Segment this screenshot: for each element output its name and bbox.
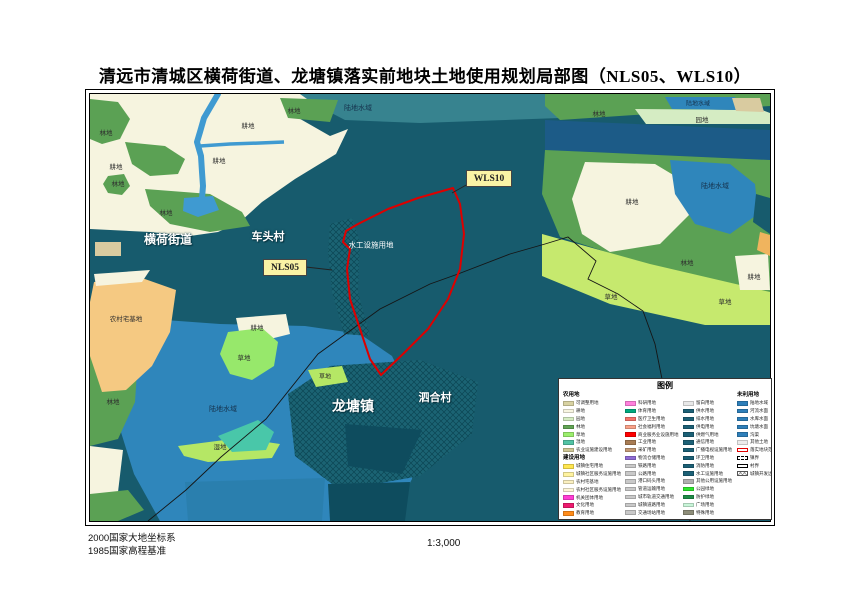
legend-swatch	[563, 495, 574, 500]
legend-item-label: 湿地	[576, 439, 585, 445]
legend-swatch	[683, 487, 694, 492]
legend-item-label: 村界	[750, 463, 759, 469]
legend-item-label: 园地	[576, 416, 585, 422]
legend-swatch	[563, 480, 574, 485]
legend-item-label: 落实地块范围	[750, 447, 772, 453]
legend-swatch	[563, 401, 574, 406]
region-top-water-band	[280, 94, 560, 123]
legend-item-label: 其他公用设施用地	[696, 478, 732, 484]
legend-swatch	[625, 510, 636, 515]
legend-swatch	[563, 432, 574, 437]
legend-swatch	[625, 471, 636, 476]
legend-item: 城市轨道交通用地	[625, 493, 683, 501]
legend-item-label: 公园绿地	[696, 486, 714, 492]
legend-item: 供水用地	[683, 407, 737, 415]
legend-swatch	[563, 425, 574, 430]
legend-item-label: 留白用地	[696, 400, 714, 406]
legend-item: 农村宅基地	[563, 478, 625, 486]
legend-item-label: 物流仓储用地	[638, 455, 665, 461]
legend-item: 广播电视设施用地	[683, 446, 737, 454]
legend-item: 消防用地	[683, 462, 737, 470]
legend-swatch	[683, 425, 694, 430]
legend-swatch	[625, 495, 636, 500]
legend-swatch	[625, 417, 636, 422]
legend-swatch	[683, 409, 694, 414]
legend-item: 铁路用地	[625, 462, 683, 470]
legend-swatch	[625, 432, 636, 437]
legend-item-label: 城镇道路用地	[638, 502, 665, 508]
legend-item: 工业用地	[625, 438, 683, 446]
legend-swatch	[737, 425, 748, 430]
legend-item: 特殊用地	[683, 509, 737, 517]
legend-item-label: 科研用地	[638, 400, 656, 406]
legend-swatch	[683, 510, 694, 515]
legend-item-label: 河流水面	[750, 408, 768, 414]
legend-item: 村界	[737, 462, 769, 470]
legend-item-label: 水工设施用地	[696, 471, 723, 477]
legend-swatch	[683, 464, 694, 469]
legend-swatch	[563, 448, 574, 453]
legend-item: 供燃气用地	[683, 431, 737, 439]
legend-item: 落实地块范围	[737, 446, 769, 454]
legend-swatch	[625, 479, 636, 484]
legend-item: 教育用地	[563, 509, 625, 517]
legend-item: 港口码头用地	[625, 477, 683, 485]
legend-item: 水库水面	[737, 415, 769, 423]
legend-item-label: 排水用地	[696, 416, 714, 422]
legend-item-label: 陆地水域	[750, 400, 768, 406]
legend-column: 未利用地陆地水域河流水面水库水面坑塘水面沟渠其他土地落实地块范围镇界村界城镇开发…	[737, 391, 769, 517]
legend-item-label: 农业设施建设用地	[576, 447, 612, 453]
legend-item: 城镇社区服务设施用地	[563, 470, 625, 478]
legend-item: 农村社区服务设施用地	[563, 486, 625, 494]
legend-swatch	[563, 417, 574, 422]
legend-item-label: 体育用地	[638, 408, 656, 414]
legend-item-label: 消防用地	[696, 463, 714, 469]
legend-item: 交通场站用地	[625, 509, 683, 517]
legend-item-label: 供燃气用地	[696, 432, 719, 438]
legend-item: 采矿用地	[625, 446, 683, 454]
legend-item-label: 特殊用地	[696, 510, 714, 516]
legend-swatch	[625, 464, 636, 469]
legend-item-label: 教育用地	[576, 510, 594, 516]
legend-item: 沟渠	[737, 431, 769, 439]
legend-item-label: 水库水面	[750, 416, 768, 422]
legend-item-label: 广场用地	[696, 502, 714, 508]
legend-title: 图例	[563, 381, 767, 391]
legend-swatch	[563, 464, 574, 469]
legend-item-label: 可调整用地	[576, 400, 599, 406]
legend-item-label: 交通场站用地	[638, 510, 665, 516]
legend-item-label: 供水用地	[696, 408, 714, 414]
legend-item: 广场用地	[683, 501, 737, 509]
legend-item-label: 草地	[576, 432, 585, 438]
legend-section-header: 未利用地	[737, 391, 769, 400]
legend-column: 农用地可调整用地耕地园地林地草地湿地农业设施建设用地建设用地城镇住宅用地城镇社区…	[563, 391, 625, 517]
legend-item: 管道运输用地	[625, 485, 683, 493]
page-title: 清远市清城区横荷街道、龙塘镇落实前地块土地使用规划局部图（NLS05、WLS10…	[0, 62, 850, 87]
legend-swatch	[683, 479, 694, 484]
legend-item-label: 供电用地	[696, 424, 714, 430]
legend-item-label: 城镇社区服务设施用地	[576, 471, 621, 477]
legend-item-label: 港口码头用地	[638, 478, 665, 484]
legend-item-label: 通信用地	[696, 439, 714, 445]
legend-section-header: 农用地	[563, 391, 625, 400]
legend-item: 商业服务业设施用地	[625, 431, 683, 439]
legend-item: 科研用地	[625, 400, 683, 408]
datum-line-2: 1985国家高程基准	[88, 543, 166, 557]
legend-swatch	[737, 432, 748, 437]
legend-swatch	[563, 488, 574, 493]
legend-item-label: 城镇开发边界	[750, 471, 772, 477]
legend-swatch	[683, 432, 694, 437]
legend-columns: 农用地可调整用地耕地园地林地草地湿地农业设施建设用地建设用地城镇住宅用地城镇社区…	[563, 391, 767, 517]
legend-item: 排水用地	[683, 415, 737, 423]
legend-item: 通信用地	[683, 438, 737, 446]
legend-item: 农业设施建设用地	[563, 446, 625, 454]
legend-item: 城镇开发边界	[737, 470, 769, 478]
legend-item: 园地	[563, 415, 625, 423]
legend-swatch	[683, 448, 694, 453]
legend-item: 机关团体用地	[563, 494, 625, 502]
legend-item-label: 城镇住宅用地	[576, 463, 603, 469]
legend-item-label: 沟渠	[750, 432, 759, 438]
legend-item: 防护绿地	[683, 493, 737, 501]
legend-swatch	[625, 456, 636, 461]
legend-item-label: 林地	[576, 424, 585, 430]
legend-item: 供电用地	[683, 423, 737, 431]
legend-swatch	[563, 409, 574, 414]
legend-item-label: 广播电视设施用地	[696, 447, 732, 453]
legend-item: 其他土地	[737, 438, 769, 446]
legend-swatch	[683, 456, 694, 461]
legend-swatch	[625, 487, 636, 492]
legend-item: 体育用地	[625, 407, 683, 415]
legend-item: 文化用地	[563, 502, 625, 510]
legend-swatch	[625, 425, 636, 430]
legend-item-label: 其他土地	[750, 439, 768, 445]
legend-swatch	[683, 401, 694, 406]
legend-swatch	[625, 503, 636, 508]
legend-item-label: 耕地	[576, 408, 585, 414]
legend-item: 耕地	[563, 407, 625, 415]
legend-item: 草地	[563, 431, 625, 439]
legend-swatch	[563, 472, 574, 477]
legend-item: 社会福利用地	[625, 423, 683, 431]
legend-swatch	[563, 440, 574, 445]
legend-swatch	[625, 448, 636, 453]
legend-swatch	[563, 511, 574, 516]
legend-swatch	[563, 503, 574, 508]
legend-item-label: 采矿用地	[638, 447, 656, 453]
legend-item: 镇界	[737, 454, 769, 462]
legend-item-label: 商业服务业设施用地	[638, 432, 679, 438]
legend-item-label: 镇界	[750, 455, 759, 461]
legend-column: 科研用地体育用地医疗卫生用地社会福利用地商业服务业设施用地工业用地采矿用地物流仓…	[625, 391, 683, 517]
legend-item: 坑塘水面	[737, 423, 769, 431]
legend-item-label: 工业用地	[638, 439, 656, 445]
legend-item-label: 防护绿地	[696, 494, 714, 500]
planning-map-page: 清远市清城区横荷街道、龙塘镇落实前地块土地使用规划局部图（NLS05、WLS10…	[0, 0, 850, 601]
legend-swatch	[737, 409, 748, 414]
legend-item-label: 坑塘水面	[750, 424, 768, 430]
legend-item: 河流水面	[737, 407, 769, 415]
legend-item-label: 环卫用地	[696, 455, 714, 461]
legend-swatch	[683, 503, 694, 508]
legend-swatch	[737, 471, 748, 476]
legend-item-label: 社会福利用地	[638, 424, 665, 430]
legend-swatch	[737, 456, 748, 461]
legend-item: 环卫用地	[683, 454, 737, 462]
legend-item: 其他公用设施用地	[683, 477, 737, 485]
legend-item: 水工设施用地	[683, 470, 737, 478]
legend-swatch	[737, 401, 748, 406]
legend-swatch	[625, 401, 636, 406]
legend-swatch	[683, 471, 694, 476]
map-scale: 1:3,000	[427, 538, 460, 549]
legend-item-label: 文化用地	[576, 502, 594, 508]
legend-item: 城镇住宅用地	[563, 463, 625, 471]
legend-swatch	[683, 495, 694, 500]
legend-swatch	[737, 464, 748, 469]
legend-item-label: 农村社区服务设施用地	[576, 487, 621, 493]
legend-item-label: 公路用地	[638, 471, 656, 477]
legend-panel: 图例 农用地可调整用地耕地园地林地草地湿地农业设施建设用地建设用地城镇住宅用地城…	[558, 378, 772, 520]
legend-swatch	[625, 409, 636, 414]
legend-item: 公园绿地	[683, 485, 737, 493]
legend-item: 物流仓储用地	[625, 454, 683, 462]
legend-item-label: 铁路用地	[638, 463, 656, 469]
legend-item-label: 医疗卫生用地	[638, 416, 665, 422]
legend-item: 城镇道路用地	[625, 501, 683, 509]
legend-swatch	[683, 440, 694, 445]
legend-item-label: 机关团体用地	[576, 495, 603, 501]
legend-swatch	[737, 448, 748, 453]
legend-item-label: 农村宅基地	[576, 479, 599, 485]
legend-item: 公路用地	[625, 470, 683, 478]
legend-swatch	[737, 417, 748, 422]
legend-item: 留白用地	[683, 400, 737, 408]
legend-section-header: 建设用地	[563, 454, 625, 463]
legend-item-label: 城市轨道交通用地	[638, 494, 674, 500]
legend-item: 湿地	[563, 438, 625, 446]
legend-item: 陆地水域	[737, 400, 769, 408]
legend-swatch	[737, 440, 748, 445]
legend-item: 林地	[563, 423, 625, 431]
datum-line-1: 2000国家大地坐标系	[88, 530, 176, 544]
legend-item: 医疗卫生用地	[625, 415, 683, 423]
legend-item-label: 管道运输用地	[638, 486, 665, 492]
legend-column: 留白用地供水用地排水用地供电用地供燃气用地通信用地广播电视设施用地环卫用地消防用…	[683, 391, 737, 517]
legend-swatch	[683, 417, 694, 422]
legend-swatch	[625, 440, 636, 445]
legend-item: 可调整用地	[563, 400, 625, 408]
